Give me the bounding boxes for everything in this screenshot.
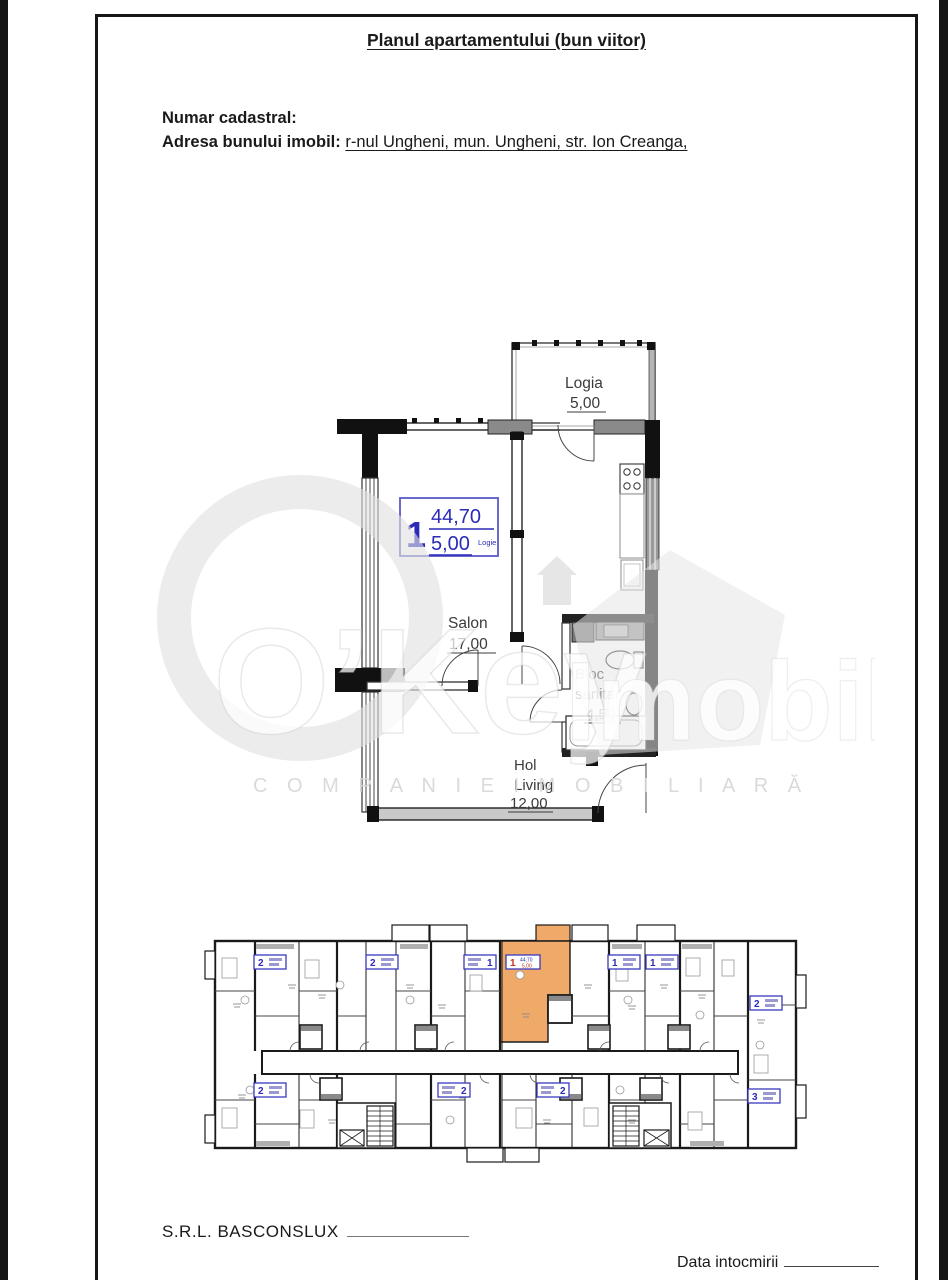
badge-1: 1 [646,955,678,969]
badge-1: 1 [464,955,496,969]
wall-bottom [367,806,604,822]
address-label: Adresa bunului imobil: [162,133,341,151]
svg-text:2: 2 [461,1086,467,1097]
date-row: Data intocmirii [677,1253,879,1272]
date-line [784,1253,879,1267]
svg-text:2: 2 [258,958,264,969]
logia-caption: Logie [478,538,496,547]
page-title: Planul apartamentului (bun viitor) [95,30,918,51]
svg-text:2: 2 [370,958,376,969]
company-signature-row: S.R.L. BASCONSLUX [162,1222,469,1242]
total-area: 44,70 [431,506,481,528]
label-hol-1: Hol [514,757,537,774]
wall-salon-kitchen [510,432,524,642]
corridor [262,1051,738,1074]
label-logia-area: 5,00 [570,395,601,412]
svg-text:2: 2 [258,1086,264,1097]
cadastral-row: Numar cadastral: [162,106,687,130]
svg-text:1: 1 [650,958,656,969]
badge-2: 2 [537,1083,569,1097]
apartment-plan-drawing: 1 44,70 5,00 Logie Logia 5,00 Salon 17,0… [330,335,680,845]
label-bloc-area: 4,50 [586,706,615,723]
badge-2: 2 [366,955,398,969]
building-floor-plan: 2 2 1 1 44,70 5,00 1 1 [200,915,812,1167]
badge-2: 2 [254,1083,286,1097]
label-hol-2: Living [514,777,553,794]
scan-edge-right [939,0,948,1280]
svg-text:1: 1 [612,958,618,969]
svg-text:3: 3 [752,1092,758,1103]
apartment-number: 1 [406,514,426,555]
wall-left [335,478,405,812]
label-logia: Logia [565,375,603,392]
badge-2: 2 [254,955,286,969]
svg-text:2: 2 [560,1086,566,1097]
label-salon-area: 17,00 [449,636,488,653]
signature-line [347,1222,469,1237]
badge-1: 1 [608,955,640,969]
scan-edge-left [0,0,8,1280]
kitchen-fixtures [620,464,644,590]
svg-text:1: 1 [487,958,493,969]
wall-right [645,420,660,756]
document-meta: Numar cadastral: Adresa bunului imobil: … [162,106,687,154]
badge-3: 3 [748,1089,780,1103]
label-hol-area: 12,00 [510,795,548,812]
apartment-info-box: 1 44,70 5,00 Logie [400,498,498,556]
svg-text:2: 2 [754,999,760,1010]
cadastral-label: Numar cadastral: [162,109,297,127]
company-name: S.R.L. BASCONSLUX [162,1222,339,1241]
label-salon: Salon [448,615,488,632]
scanned-floor-plan-document: { "page": { "title": "Planul apartamentu… [0,0,948,1280]
svg-text:5,00: 5,00 [522,964,532,970]
svg-text:1: 1 [510,958,516,969]
wall-salon-bottom [367,680,478,692]
wall-top [337,418,645,478]
badge-2: 2 [438,1083,470,1097]
badge-2: 2 [750,996,782,1010]
logia-area: 5,00 [431,533,470,555]
label-bloc-1: Bloc [575,666,605,683]
badge-highlighted-1: 1 44,70 5,00 [506,955,540,970]
address-value: r-nul Ungheni, mun. Ungheni, str. Ion Cr… [345,133,687,151]
label-bloc-2: sanitar [575,686,620,703]
address-row: Adresa bunului imobil: r-nul Ungheni, mu… [162,130,687,154]
date-label: Data intocmirii [677,1254,778,1271]
